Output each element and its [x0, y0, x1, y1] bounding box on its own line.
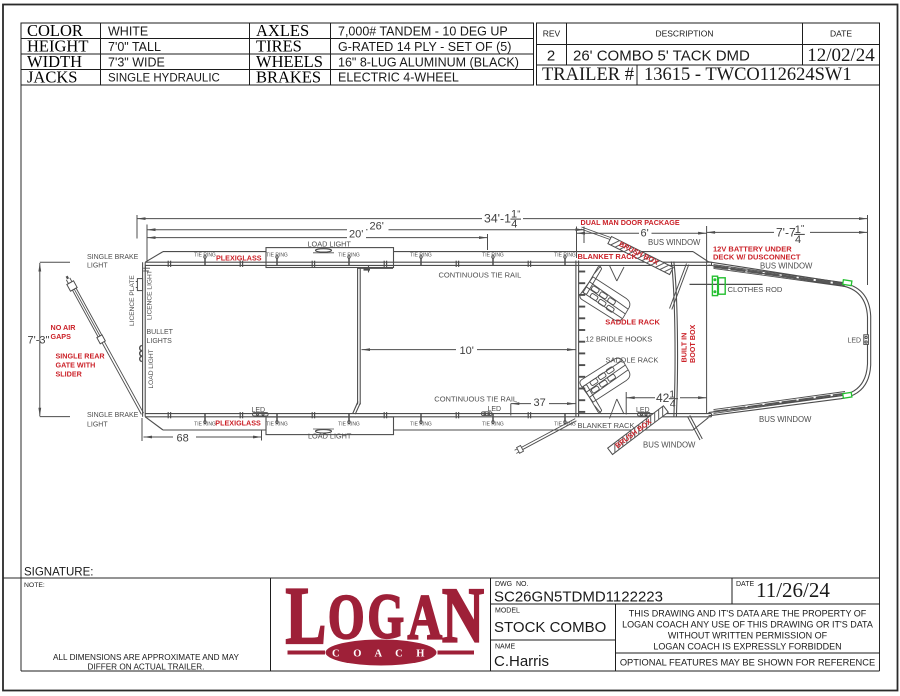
- svg-text:10': 10': [460, 345, 474, 357]
- svg-text:LED: LED: [252, 407, 266, 414]
- svg-text:": ": [517, 209, 520, 219]
- svg-text:BUS WINDOW: BUS WINDOW: [648, 238, 701, 247]
- svg-text:DECK W/ DUSCONNECT: DECK W/ DUSCONNECT: [713, 252, 801, 261]
- svg-text:TIE RING: TIE RING: [194, 253, 216, 259]
- svg-text:BLANKET RACK: BLANKET RACK: [578, 421, 635, 430]
- svg-text:G-RATED 14 PLY - SET OF (5): G-RATED 14 PLY - SET OF (5): [338, 40, 511, 54]
- svg-text:SINGLE BRAKE: SINGLE BRAKE: [87, 412, 139, 419]
- svg-text:11/26/24: 11/26/24: [756, 578, 830, 602]
- svg-text:STOCK COMBO: STOCK COMBO: [494, 619, 606, 636]
- svg-text:TIE RING: TIE RING: [482, 422, 504, 428]
- svg-text:TIE RING: TIE RING: [266, 253, 288, 259]
- svg-text:LICENCE LIGHT: LICENCE LIGHT: [147, 270, 154, 320]
- svg-text:26': 26': [370, 221, 384, 233]
- svg-text:LED: LED: [488, 406, 502, 413]
- svg-text:LIGHTS: LIGHTS: [147, 338, 173, 345]
- svg-text:4: 4: [511, 219, 517, 231]
- svg-text:LOAD LIGHT: LOAD LIGHT: [308, 240, 352, 249]
- svg-text:TIE RING: TIE RING: [338, 253, 360, 259]
- svg-text:LED: LED: [848, 338, 862, 345]
- svg-text:2: 2: [547, 48, 555, 65]
- svg-text:SINGLE HYDRAULIC: SINGLE HYDRAULIC: [108, 73, 220, 85]
- svg-text:BLANKET RACK: BLANKET RACK: [578, 252, 638, 261]
- svg-text:C O A C H: C O A C H: [332, 649, 430, 660]
- svg-text:4: 4: [795, 234, 801, 246]
- svg-text:13615 - TWCO112624SW1: 13615 - TWCO112624SW1: [644, 65, 852, 85]
- svg-text:37: 37: [534, 397, 546, 409]
- svg-text:TIE RING: TIE RING: [554, 253, 576, 259]
- svg-text:REV: REV: [543, 29, 561, 39]
- svg-text:PLEXIGLASS: PLEXIGLASS: [215, 419, 261, 428]
- svg-text:26' COMBO 5' TACK DMD: 26' COMBO 5' TACK DMD: [573, 48, 750, 65]
- svg-text:BOOT BOX: BOOT BOX: [688, 324, 697, 363]
- svg-text:CONTINUOUS TIE RAIL: CONTINUOUS TIE RAIL: [439, 270, 522, 279]
- svg-text:OPTIONAL FEATURES MAY BE SHOWN: OPTIONAL FEATURES MAY BE SHOWN FOR REFER…: [620, 658, 875, 668]
- svg-text:C.Harris: C.Harris: [494, 653, 549, 670]
- svg-text:SADDLE RACK: SADDLE RACK: [606, 356, 659, 365]
- svg-text:GAPS: GAPS: [51, 332, 72, 341]
- svg-text:WHITE: WHITE: [108, 25, 148, 39]
- svg-text:LED: LED: [636, 407, 650, 414]
- svg-text:ELECTRIC 4-WHEEL: ELECTRIC 4-WHEEL: [338, 71, 459, 85]
- svg-text:PLEXIGLASS: PLEXIGLASS: [216, 253, 262, 262]
- svg-text:BULLET: BULLET: [147, 329, 174, 336]
- svg-text:DATE: DATE: [830, 29, 852, 39]
- svg-text:LOGAN COACH ANY USE OF THIS DR: LOGAN COACH ANY USE OF THIS DRAWING OR I…: [622, 620, 873, 630]
- svg-text:TIE RING: TIE RING: [194, 422, 216, 428]
- svg-text:DWG NO.: DWG NO.: [495, 581, 528, 588]
- svg-text:L: L: [286, 570, 327, 661]
- svg-text:THIS DRAWING AND IT'S DATA ARE: THIS DRAWING AND IT'S DATA ARE THE PROPE…: [629, 609, 867, 619]
- svg-text:7'-3": 7'-3": [28, 335, 50, 347]
- svg-text:MODEL: MODEL: [495, 608, 520, 615]
- svg-text:SIGNATURE:: SIGNATURE:: [24, 567, 93, 579]
- svg-text:DUAL MAN DOOR PACKAGE: DUAL MAN DOOR PACKAGE: [581, 218, 680, 227]
- svg-text:TIE RING: TIE RING: [554, 422, 576, 428]
- svg-text:TIE RING: TIE RING: [410, 253, 432, 259]
- svg-text:7,000# TANDEM - 10 DEG UP: 7,000# TANDEM - 10 DEG UP: [338, 25, 508, 39]
- svg-text:": ": [801, 224, 804, 234]
- svg-text:NAME: NAME: [495, 644, 516, 651]
- svg-text:SC26GN5TDMD1122223: SC26GN5TDMD1122223: [494, 589, 663, 606]
- svg-text:WITHOUT WRITTEN PERMISSION OF: WITHOUT WRITTEN PERMISSION OF: [668, 631, 828, 641]
- svg-text:TIE RING: TIE RING: [410, 422, 432, 428]
- svg-text:DATE: DATE: [736, 581, 754, 588]
- svg-text:NOTE:: NOTE:: [24, 582, 45, 589]
- svg-text:12/02/24: 12/02/24: [807, 45, 875, 66]
- svg-text:SLIDER: SLIDER: [56, 370, 83, 379]
- svg-text:JACKS: JACKS: [27, 68, 77, 87]
- svg-text:LIGHT: LIGHT: [87, 262, 108, 269]
- svg-text:68: 68: [177, 432, 189, 444]
- svg-text:20': 20': [349, 228, 363, 240]
- svg-text:LIGHT: LIGHT: [87, 422, 108, 429]
- svg-text:SINGLE BRAKE: SINGLE BRAKE: [87, 254, 139, 261]
- svg-text:BUS WINDOW: BUS WINDOW: [643, 441, 696, 450]
- svg-text:7'0" TALL: 7'0" TALL: [108, 40, 161, 54]
- svg-text:TIE RING: TIE RING: [338, 422, 360, 428]
- svg-text:LOAD LIGHT: LOAD LIGHT: [308, 431, 352, 440]
- svg-text:LOGAN COACH IS EXPRESSLY FORBI: LOGAN COACH IS EXPRESSLY FORBIDDEN: [653, 642, 841, 652]
- svg-text:BRAKES: BRAKES: [256, 68, 321, 87]
- svg-text:BUS WINDOW: BUS WINDOW: [759, 415, 812, 424]
- svg-text:TIE RING: TIE RING: [482, 253, 504, 259]
- svg-text:CLOTHES ROD: CLOTHES ROD: [728, 285, 783, 294]
- svg-text:7'3" WIDE: 7'3" WIDE: [108, 56, 165, 70]
- svg-text:SADDLE RACK: SADDLE RACK: [605, 318, 660, 327]
- svg-text:NO AIR: NO AIR: [51, 323, 77, 332]
- svg-text:BUS WINDOW: BUS WINDOW: [760, 261, 813, 270]
- svg-text:SINGLE REAR: SINGLE REAR: [56, 352, 106, 361]
- svg-text:CONTINUOUS TIE RAIL: CONTINUOUS TIE RAIL: [434, 394, 517, 403]
- svg-text:7'-7: 7'-7: [776, 226, 796, 240]
- svg-text:ALL DIMENSIONS ARE APPROXIMATE: ALL DIMENSIONS ARE APPROXIMATE AND MAY: [53, 653, 239, 662]
- svg-text:GATE WITH: GATE WITH: [56, 361, 96, 370]
- svg-text:42: 42: [656, 391, 670, 405]
- svg-text:TIE RING: TIE RING: [266, 422, 288, 428]
- svg-text:LICENCE PLATE: LICENCE PLATE: [129, 275, 136, 326]
- svg-text:34'-1: 34'-1: [484, 212, 511, 226]
- svg-text:TRAILER #: TRAILER #: [542, 65, 634, 85]
- svg-text:LOAD LIGHT: LOAD LIGHT: [148, 349, 155, 388]
- svg-text:N: N: [442, 572, 484, 658]
- svg-text:DESCRIPTION: DESCRIPTION: [655, 29, 713, 39]
- svg-text:16" 8-LUG ALUMINUM (BLACK): 16" 8-LUG ALUMINUM (BLACK): [338, 56, 519, 70]
- svg-text:DIFFER ON ACTUAL TRAILER.: DIFFER ON ACTUAL TRAILER.: [88, 663, 205, 672]
- svg-text:12 BRIDLE HOOKS: 12 BRIDLE HOOKS: [586, 335, 653, 344]
